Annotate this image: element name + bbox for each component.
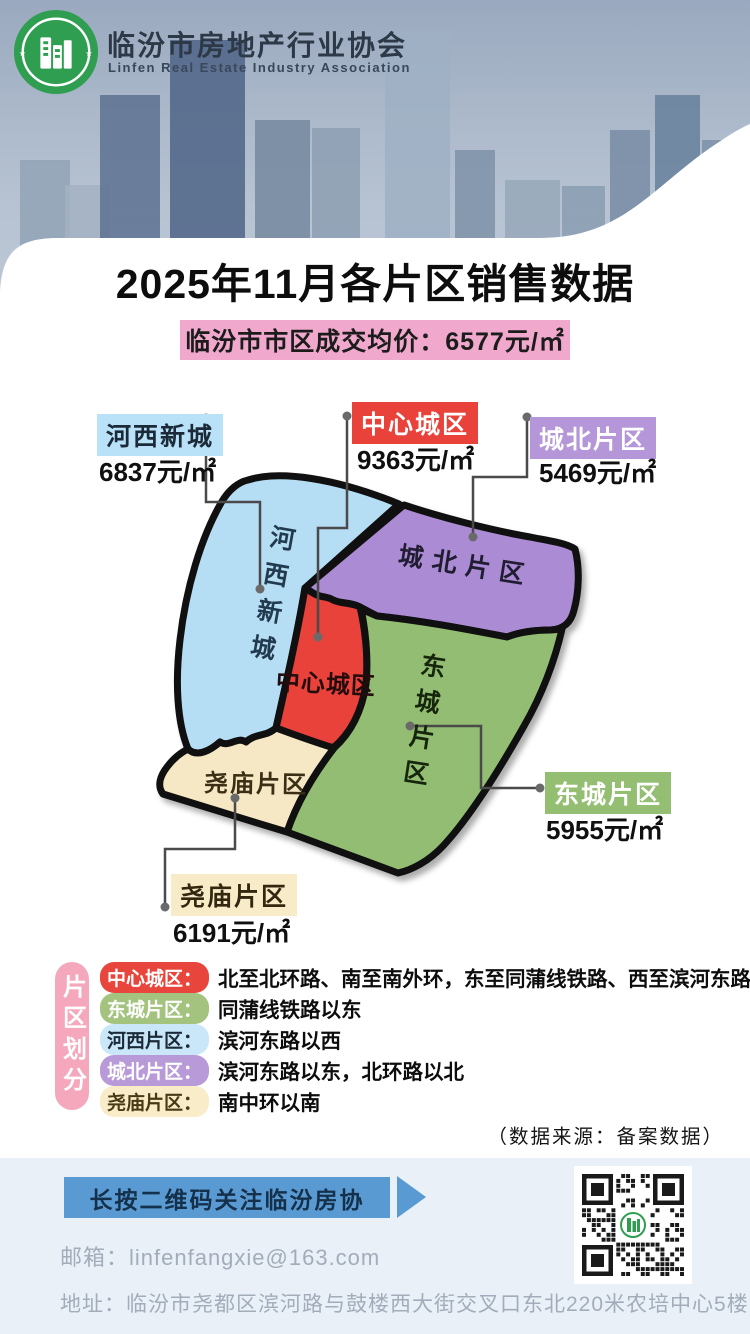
- legend-desc-yaomiao: 南中环以南: [218, 1086, 321, 1116]
- map-price-center: 9363元/㎡: [357, 440, 474, 477]
- legend-desc-dongcheng: 同蒲线铁路以东: [218, 993, 362, 1023]
- org-name-cn: 临汾市房地产行业协会: [107, 24, 407, 64]
- legend-row: 尧庙片区： 南中环以南: [100, 1086, 740, 1116]
- map-price-dongcheng: 5955元/㎡: [546, 810, 663, 847]
- map-price-hexi: 6837元/㎡: [99, 452, 216, 489]
- connector-dot: [343, 412, 352, 421]
- svg-text:★: ★: [85, 49, 92, 58]
- qr-code: [574, 1166, 692, 1284]
- legend-desc-chengbei: 滨河东路以东，北环路以北: [218, 1055, 464, 1085]
- association-logo-icon: ★ ★: [12, 8, 100, 96]
- page-title: 2025年11月各片区销售数据: [0, 250, 750, 310]
- legend-pill-dongcheng: 东城片区：: [100, 993, 209, 1024]
- footer: 长按二维码关注临汾房协 邮箱：linfenfangxie@163.com 地址：…: [0, 1158, 750, 1334]
- map-label-hexi: 河西新城: [97, 414, 223, 456]
- qr-follow-button[interactable]: 长按二维码关注临汾房协: [64, 1177, 390, 1218]
- map-price-yaomiao: 6191元/㎡: [173, 913, 290, 950]
- org-name-en: Linfen Real Estate Industry Association: [108, 60, 411, 75]
- legend-row: 河西片区： 滨河东路以西: [100, 1024, 740, 1054]
- svg-text:★: ★: [19, 49, 26, 58]
- contact-address: 地址：临汾市尧都区滨河路与鼓楼西大街交叉口东北220米农培中心5楼: [60, 1288, 749, 1318]
- legend-pill-chengbei: 城北片区：: [100, 1055, 209, 1086]
- connector-dot: [314, 633, 323, 642]
- contact-email: 邮箱：linfenfangxie@163.com: [60, 1240, 380, 1272]
- map-price-chengbei: 5469元/㎡: [539, 453, 656, 490]
- legend-row: 中心城区： 北至北环路、南至南外环，东至同蒲线铁路、西至滨河东路: [100, 962, 740, 992]
- map-label-center: 中心城区: [352, 402, 478, 444]
- region-label-center: 中心城区: [275, 661, 377, 701]
- legend-desc-center: 北至北环路、南至南外环，东至同蒲线铁路、西至滨河东路: [218, 962, 750, 992]
- legend-pill-center: 中心城区：: [100, 962, 209, 993]
- legend-pill-yaomiao: 尧庙片区：: [100, 1086, 209, 1117]
- connector-dot: [469, 533, 478, 542]
- region-label-yaomiao: 尧庙片区: [204, 763, 309, 800]
- legend-side-label: 片区划分: [55, 962, 89, 1110]
- source-note: （数据来源：备案数据）: [487, 1120, 724, 1149]
- qr-logo-icon: [619, 1211, 647, 1239]
- map-label-dongcheng: 东城片区: [545, 772, 671, 814]
- qr-arrow-icon: [397, 1176, 426, 1218]
- map-label-yaomiao: 尧庙片区: [171, 874, 297, 916]
- connector-line-chengbei: [473, 417, 527, 537]
- legend: 中心城区： 北至北环路、南至南外环，东至同蒲线铁路、西至滨河东路 东城片区： 同…: [100, 962, 740, 1117]
- connector-dot: [161, 903, 170, 912]
- poster-page: { "header": { "org_cn": "临汾市房地产行业协会", "o…: [0, 0, 750, 1334]
- connector-dot: [536, 784, 545, 793]
- legend-row: 东城片区： 同蒲线铁路以东: [100, 993, 740, 1023]
- legend-pill-hexi: 河西片区：: [100, 1024, 209, 1055]
- legend-row: 城北片区： 滨河东路以东，北环路以北: [100, 1055, 740, 1085]
- avg-price-banner: 临汾市市区成交均价：6577元/㎡: [180, 320, 570, 360]
- legend-desc-hexi: 滨河东路以西: [218, 1024, 341, 1054]
